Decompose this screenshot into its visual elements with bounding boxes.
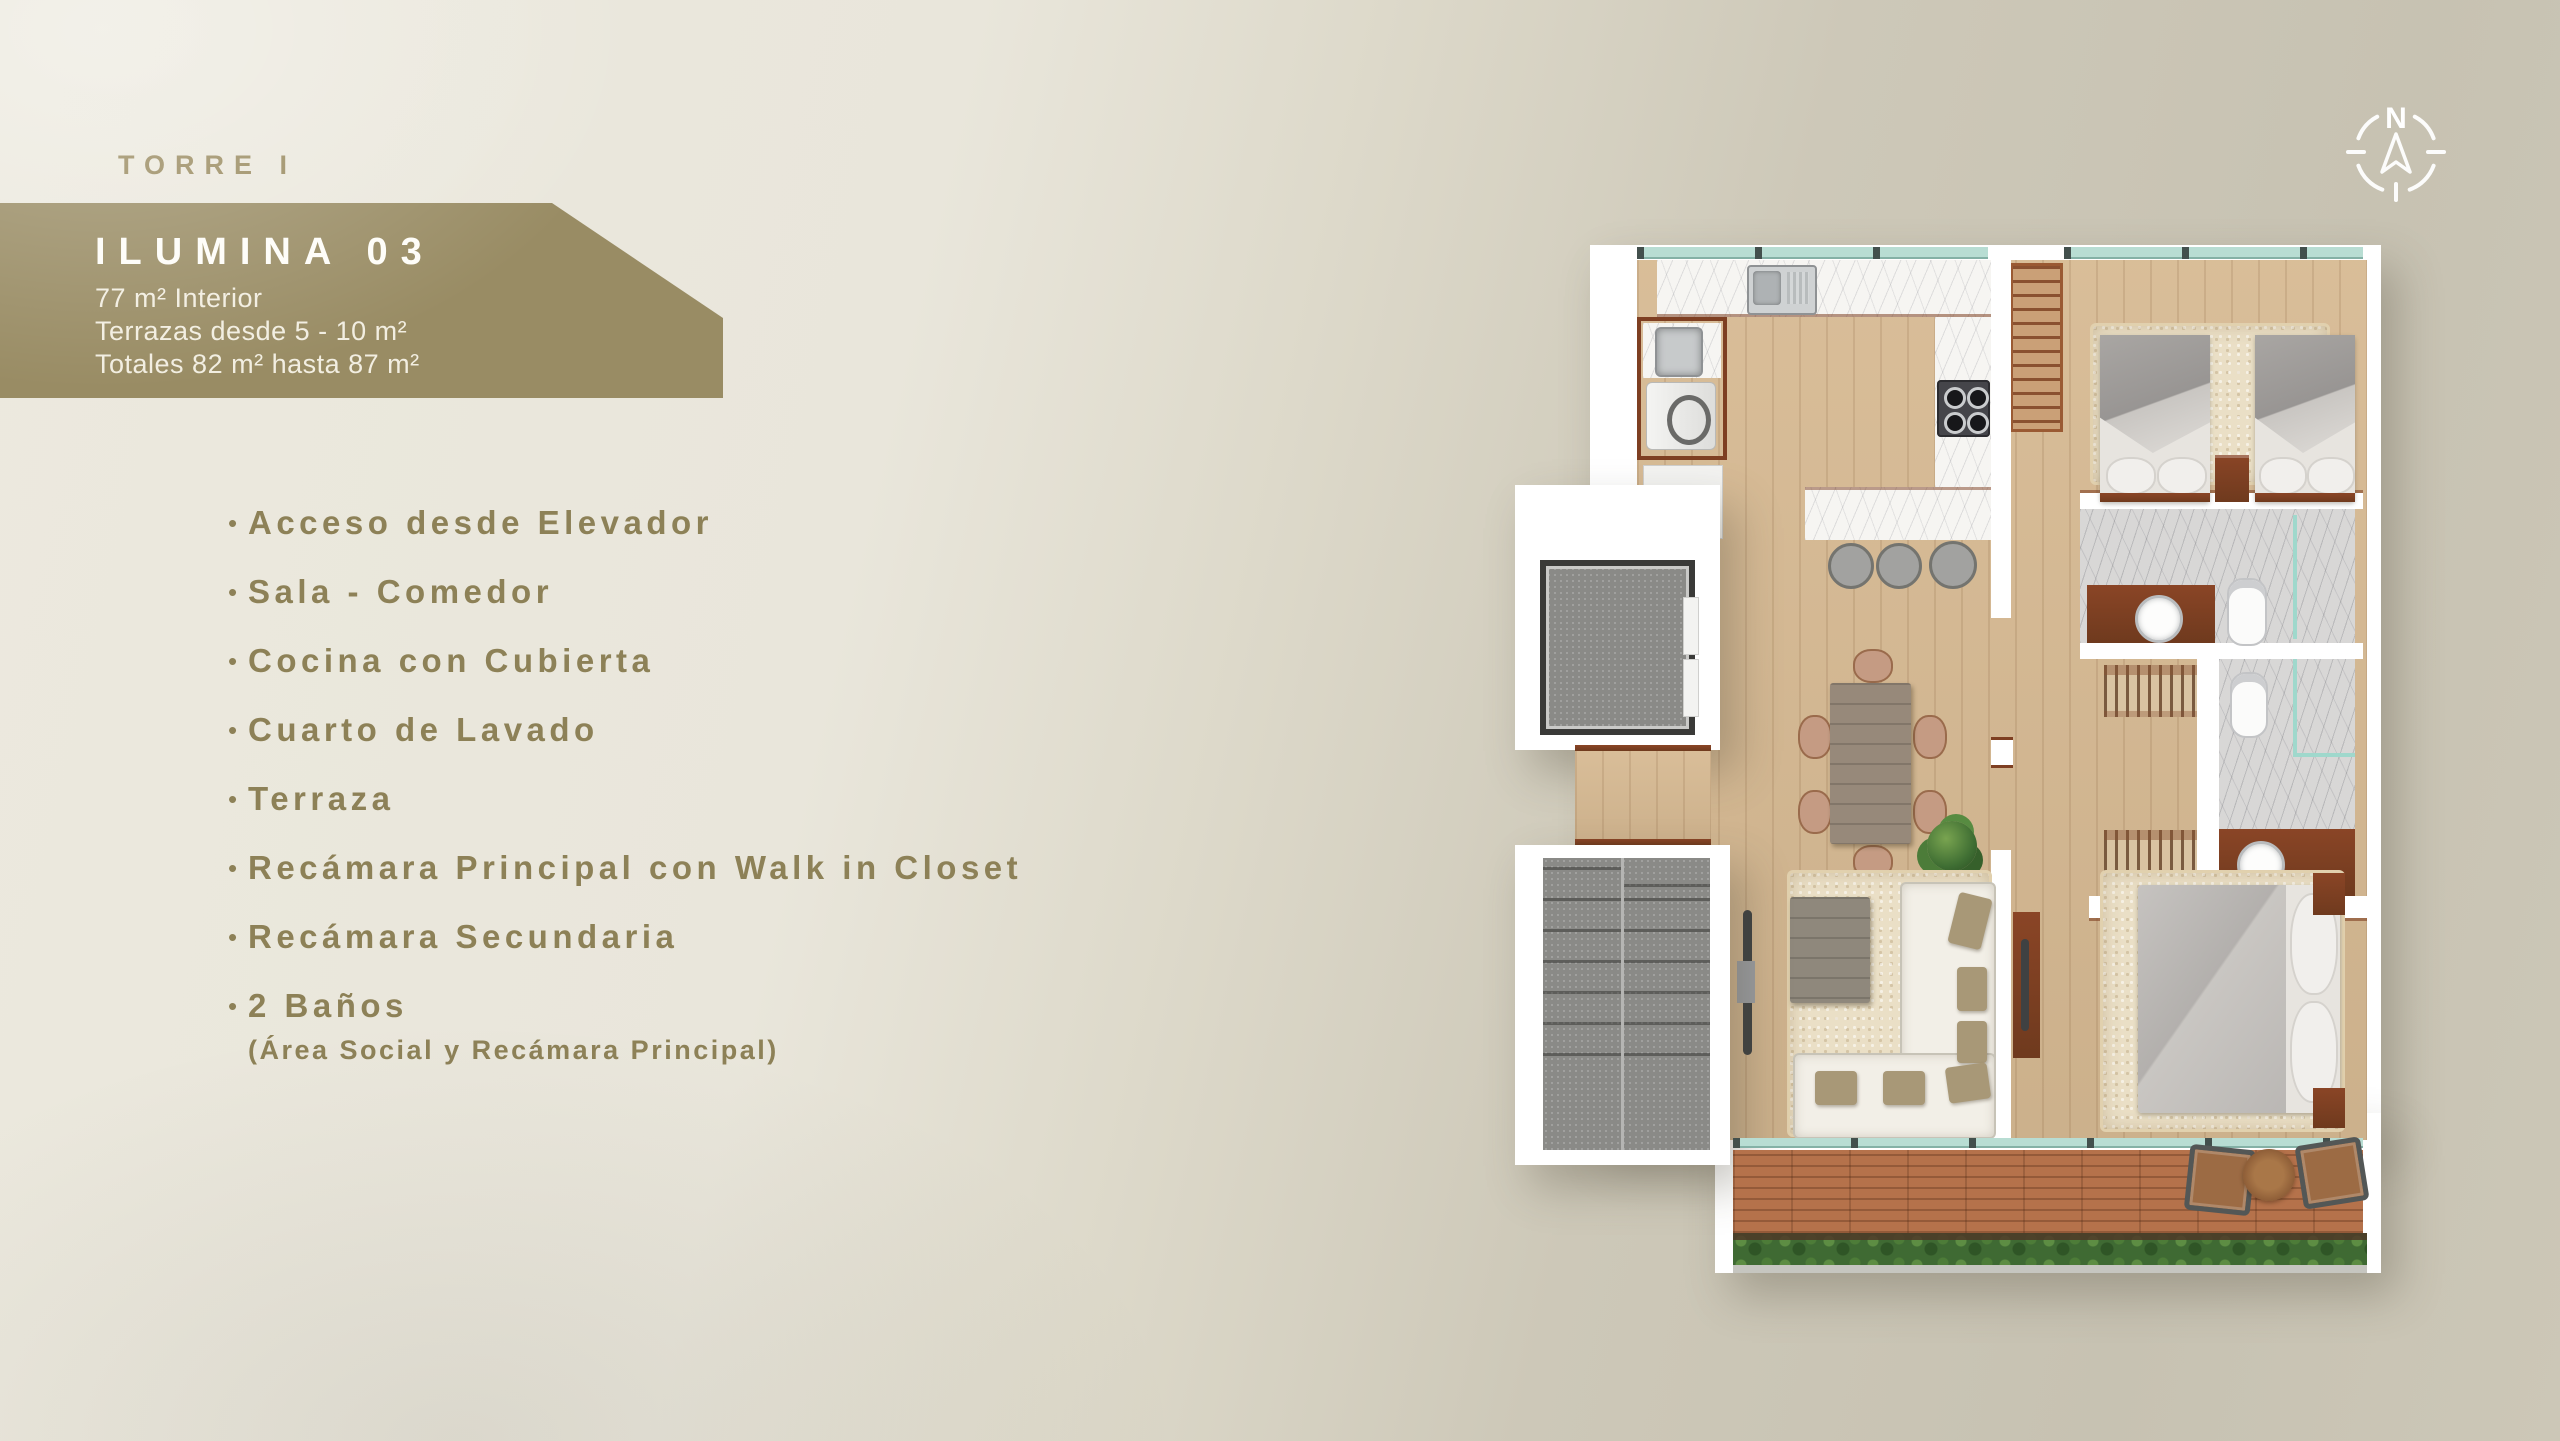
wall <box>1991 740 2013 765</box>
unit-banner: ILUMINA 03 77 m² Interior Terrazas desde… <box>0 203 723 398</box>
shower-glass <box>2293 515 2297 639</box>
social-sink <box>2135 595 2183 643</box>
stool <box>1876 543 1922 589</box>
unit-area-interior: 77 m² Interior <box>95 282 723 315</box>
window-bedroom <box>2064 247 2363 259</box>
list-item: •Recámara Secundaria <box>228 919 1022 955</box>
unit-area-total: Totales 82 m² hasta 87 m² <box>95 348 723 381</box>
closet-rod <box>2104 665 2197 717</box>
kitchen-sink <box>1747 265 1817 315</box>
sofa-cushion <box>1957 1021 1987 1063</box>
vestibule-floor <box>1575 750 1711 845</box>
tv-master <box>2021 939 2029 1031</box>
list-item-sublabel: (Área Social y Recámara Principal) <box>248 1033 779 1067</box>
compass-n-label: N <box>2385 102 2407 135</box>
terrace-chair <box>2294 1136 2369 1210</box>
window-kitchen <box>1637 247 1988 259</box>
dining-table <box>1830 683 1911 844</box>
bullet-icon: • <box>228 988 248 1024</box>
sofa-cushion <box>1945 1062 1992 1103</box>
tv-bracket <box>1737 961 1755 1003</box>
elevator-door <box>1683 659 1699 717</box>
terrace-sliding-door <box>1733 1138 2363 1148</box>
dining-chair <box>1798 790 1832 834</box>
bullet-icon: • <box>228 574 248 610</box>
stool <box>1828 543 1874 589</box>
compass-north-icon: N <box>2338 88 2454 210</box>
single-bed <box>2100 335 2210 502</box>
wall <box>1991 260 2011 618</box>
stool <box>1929 541 1977 589</box>
elevator-door <box>1683 597 1699 655</box>
dining-chair <box>1798 715 1832 759</box>
kitchen-counter-top <box>1657 260 1993 317</box>
list-item: • 2 Baños (Área Social y Recámara Princi… <box>228 988 1022 1067</box>
list-item: •Sala - Comedor <box>228 574 1022 610</box>
list-item: •Terraza <box>228 781 1022 817</box>
master-toilet <box>2230 672 2268 738</box>
master-bed <box>2138 885 2340 1113</box>
unit-title: ILUMINA 03 <box>95 231 723 274</box>
single-bed <box>2255 335 2355 502</box>
list-item: •Recámara Principal con Walk in Closet <box>228 850 1022 886</box>
sofa-cushion <box>1883 1071 1925 1105</box>
elevator-cab <box>1540 560 1695 735</box>
stair-flight <box>1543 867 1623 1082</box>
list-item: •Acceso desde Elevador <box>228 505 1022 541</box>
wall <box>2197 659 2219 896</box>
tower-label: TORRE I <box>118 150 297 181</box>
slide: TORRE I ILUMINA 03 77 m² Interior Terraz… <box>0 0 2560 1441</box>
terrace-hedge <box>1733 1233 2367 1265</box>
wall-trim <box>1575 745 1711 751</box>
social-toilet <box>2227 578 2267 646</box>
kitchen-island <box>1805 487 1993 540</box>
nightstand <box>2215 455 2249 502</box>
bullet-icon: • <box>228 919 248 955</box>
shower-glass <box>2293 753 2355 757</box>
nightstand <box>2313 1088 2345 1128</box>
feature-list: •Acceso desde Elevador •Sala - Comedor •… <box>228 505 1022 1100</box>
laundry-sink <box>1655 327 1703 377</box>
dining-chair <box>1913 715 1947 759</box>
bullet-icon: • <box>228 850 248 886</box>
floorplan <box>1515 245 2381 1275</box>
dining-chair <box>1853 649 1893 683</box>
list-item: •Cocina con Cubierta <box>228 643 1022 679</box>
wall <box>2080 643 2363 659</box>
bullet-icon: • <box>228 643 248 679</box>
sofa-cushion <box>1957 967 1987 1011</box>
nightstand <box>2313 873 2345 915</box>
shelf-unit <box>2010 263 2063 432</box>
stove <box>1937 380 1990 437</box>
washer <box>1646 382 1716 450</box>
list-item: •Cuarto de Lavado <box>228 712 1022 748</box>
coffee-table <box>1790 897 1870 1003</box>
stair-flight <box>1623 883 1710 1083</box>
bullet-icon: • <box>228 781 248 817</box>
bullet-icon: • <box>228 712 248 748</box>
plant <box>1927 821 1977 871</box>
terrace-table <box>2243 1149 2295 1201</box>
shower-glass <box>2293 659 2297 755</box>
stairwell <box>1543 858 1710 1150</box>
sofa-cushion <box>1815 1071 1857 1105</box>
bullet-icon: • <box>228 505 248 541</box>
unit-area-terrace: Terrazas desde 5 - 10 m² <box>95 315 723 348</box>
terrace-edge <box>1733 1265 2367 1273</box>
